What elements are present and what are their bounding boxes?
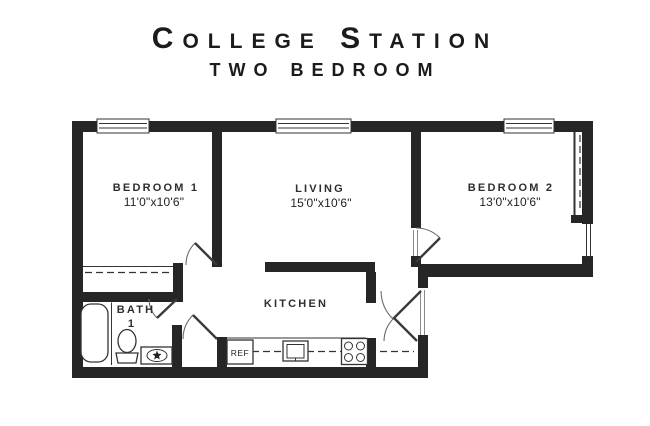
refrigerator: REF (227, 340, 253, 364)
kitchen-door (183, 315, 217, 339)
wall-bedroom1-living (212, 132, 222, 267)
bath-number: 1 (128, 318, 136, 330)
wall-kitchen-top (265, 262, 375, 272)
wall-hall-right-stub (418, 277, 428, 288)
wall-living-bedroom2 (411, 132, 421, 228)
floor-plan-page: College Station two bedroom (0, 0, 650, 426)
wall-closet-bath (72, 292, 183, 302)
stove (342, 339, 368, 365)
living-dimensions: 15'0"x10'6" (290, 196, 351, 210)
wall-kitchen-east-upper (366, 272, 376, 303)
right-window-bottom-cap (582, 256, 593, 265)
entry-door (381, 290, 425, 341)
wall-counter-end-stub (217, 337, 227, 368)
bedroom1-dimensions: 11'0"x10'6" (124, 195, 184, 209)
living-window (276, 119, 351, 133)
wall-bath-right-lower (172, 325, 182, 368)
bedroom1-label: BEDROOM 1 (113, 182, 199, 194)
walls (72, 121, 593, 378)
floor-plan-drawing: REF BEDROOM 1 11'0"x10'6" LIVING 15'0"x1… (0, 0, 650, 426)
bedroom2-window (504, 119, 554, 133)
kitchen-sink (283, 341, 308, 361)
room-labels: BEDROOM 1 11'0"x10'6" LIVING 15'0"x10'6"… (113, 182, 554, 330)
wall-closet-stub (173, 263, 183, 302)
bedroom1-window (97, 119, 149, 133)
living-label: LIVING (295, 183, 345, 195)
bath-sink (141, 347, 172, 364)
kitchen-label: KITCHEN (264, 298, 328, 310)
bedroom2-label: BEDROOM 2 (468, 182, 554, 194)
bathtub (81, 304, 108, 362)
closets-and-counters (83, 132, 580, 365)
bedroom2-side-window (587, 224, 591, 258)
doors (149, 228, 440, 341)
bath-label: BATH (117, 304, 156, 316)
wall-bedroom2-bottom (418, 264, 593, 277)
bedroom2-closet-bottom-stub (571, 215, 593, 223)
bedroom2-dimensions: 13'0"x10'6" (479, 195, 540, 209)
refrigerator-label: REF (231, 348, 250, 358)
wall-bottom (72, 367, 428, 378)
wall-right-upper (582, 121, 593, 222)
toilet (116, 330, 138, 364)
wall-hall-right-lower (418, 335, 428, 378)
